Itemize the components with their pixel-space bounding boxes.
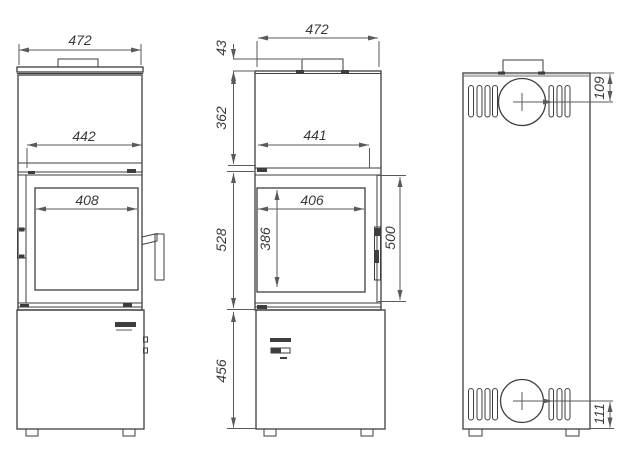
dim-flue-from-top: 109 [591,76,607,100]
air-control-mark [257,305,267,309]
foot [123,429,135,436]
foot [566,429,579,436]
hinge-pin [19,255,25,259]
control-lever [270,338,291,342]
dim-overall-width-b: 472 [305,21,329,37]
dim-glass-width-a: 408 [75,192,99,208]
dim-upper-section: 362 [213,106,229,130]
dim-collar-height: 43 [213,40,229,56]
handle-mark [375,228,381,236]
flue-collar [503,60,543,73]
control-knob [271,348,281,353]
base-cabinet [256,310,385,429]
dim-overall-width-a: 472 [68,32,92,48]
latch-mark [127,169,136,173]
foot [26,429,38,436]
vent-slot [549,389,554,421]
vent-slot [477,86,482,118]
vent-slot [469,389,474,421]
handle-mark [375,250,379,263]
vent-slot [565,389,570,421]
dim-door-height: 500 [382,226,398,250]
dim-glass-width-b: 406 [300,192,324,208]
flue-collar [302,59,343,71]
stove-back-panel [463,73,590,429]
top-edge-shade [464,75,589,78]
dim-base-section: 456 [213,359,229,383]
dim-glass-height: 386 [257,227,273,251]
latch-mark [28,171,35,174]
base-cabinet [17,310,144,429]
dim-flue-from-bottom: 111 [591,403,607,424]
foot [361,429,373,436]
leader-arrow [543,100,553,105]
stove-dimension-drawing: 472 442 408 472 [0,0,624,460]
air-control-mark [20,304,29,307]
brand-label [115,322,136,327]
drawing-svg: 472 442 408 472 [0,0,624,460]
stove-body [255,71,381,310]
latch-mark [257,168,267,172]
vent-slot [477,389,482,421]
vent-slot [557,389,562,421]
collar-base-mark [538,72,545,75]
foot [264,429,276,436]
door-hinge [18,229,27,258]
view-front-a: 472 442 408 [17,32,164,436]
flue-collar [58,59,98,67]
dim-middle-section: 528 [213,228,229,252]
collar-base-mark [498,72,505,75]
dim-door-width-a: 442 [72,128,96,144]
vent-slot [485,86,490,118]
dim-opening-width: 441 [303,127,326,143]
vent-slot [557,86,562,118]
vent-slot [493,389,498,421]
collar-base-mark [296,70,304,73]
view-back: 109 111 [463,60,614,436]
control-mark [280,357,287,359]
hinge-pin [19,228,25,232]
vent-slot [485,389,490,421]
top-plate [17,67,143,72]
leader-arrow [543,399,553,404]
view-front-b: 472 43 362 441 406 386 528 500 456 [213,21,406,436]
vent-slot [469,86,474,118]
air-control-mark [123,303,132,307]
collar-base-mark [341,70,349,73]
vent-slot [565,86,570,118]
foot [469,429,482,436]
vent-slot [493,86,498,118]
